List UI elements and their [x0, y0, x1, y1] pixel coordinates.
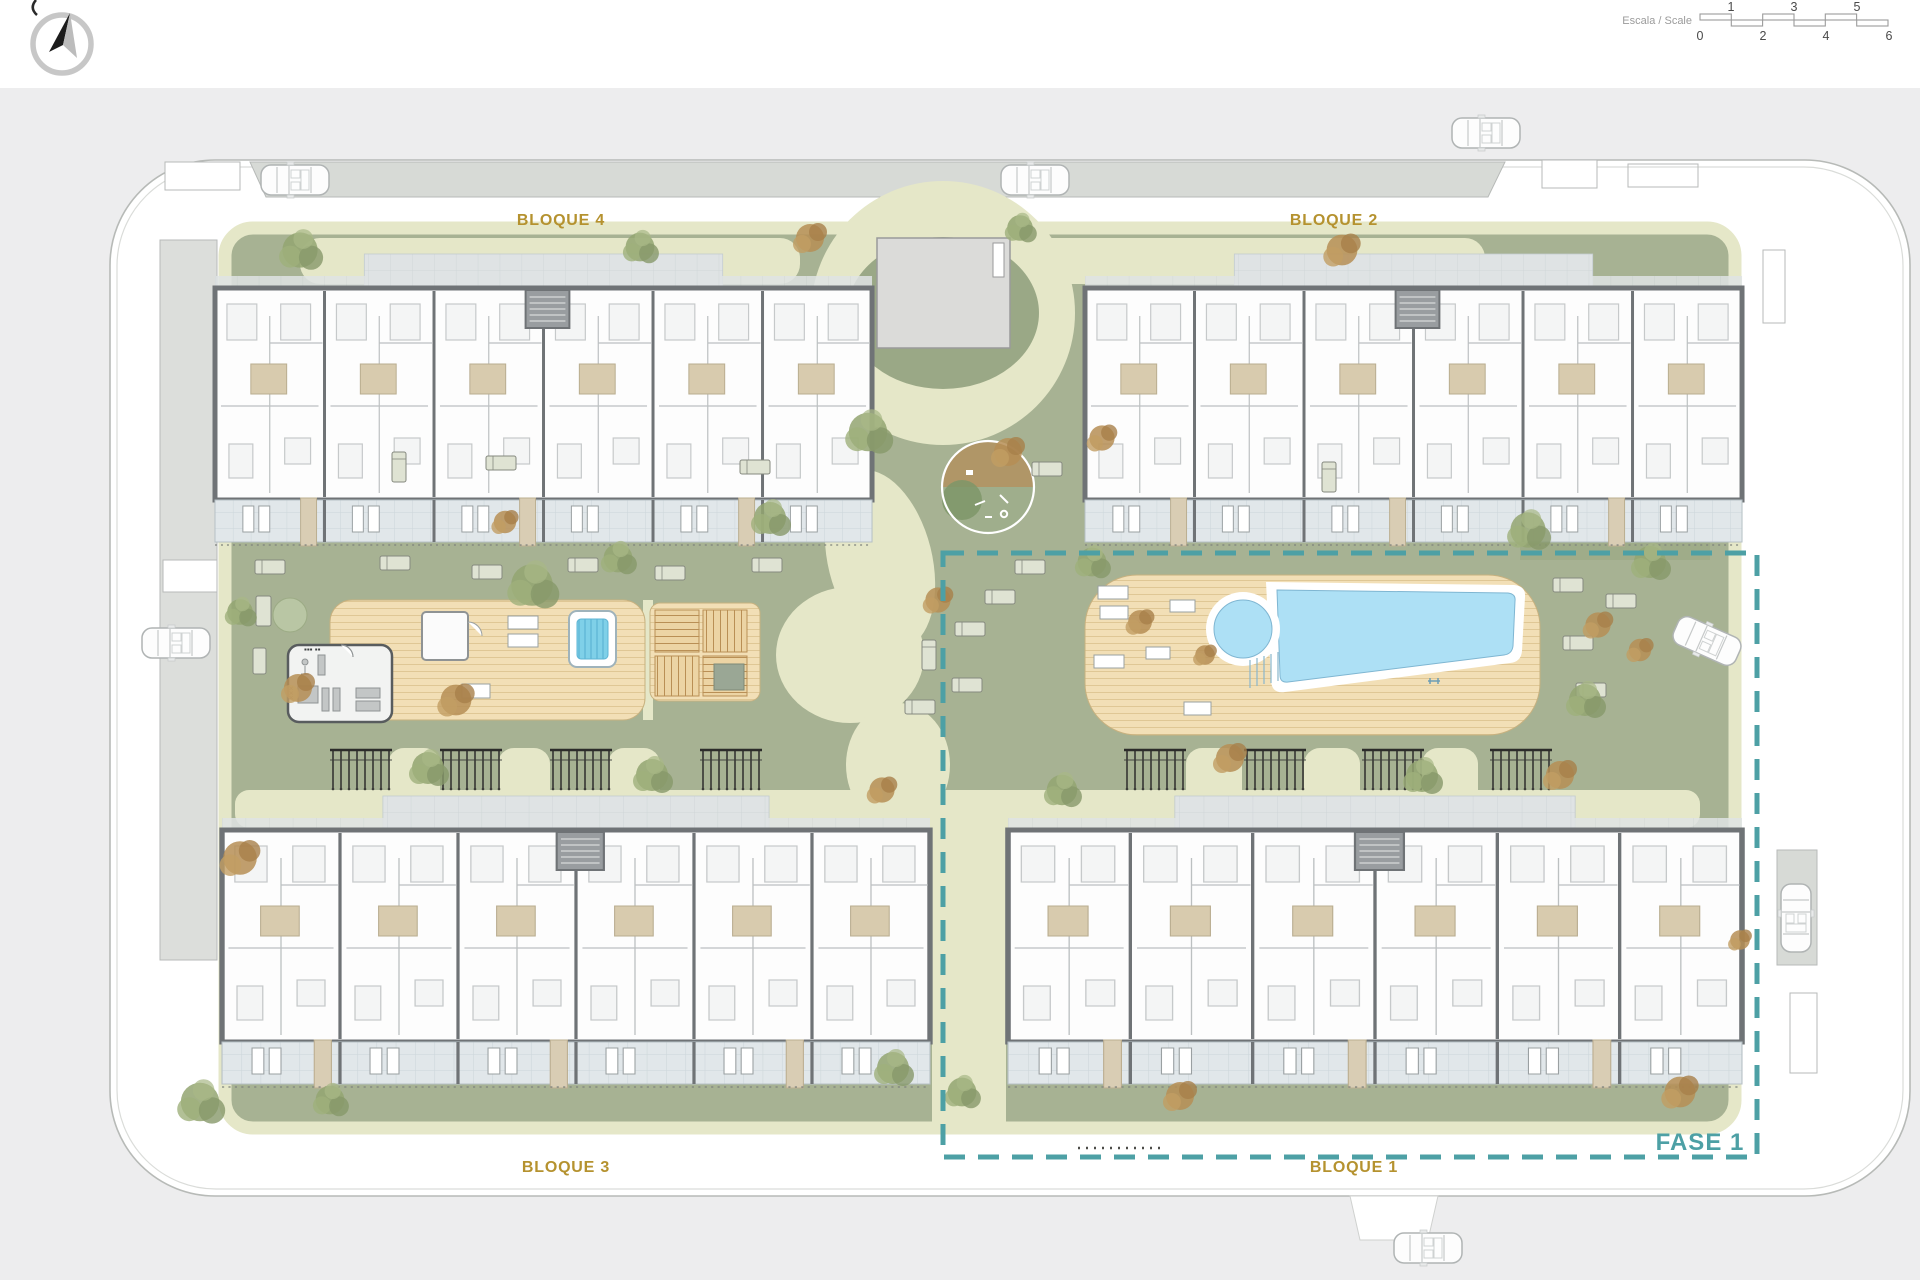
building-bloque-3 [222, 796, 930, 1088]
car-top-right [1452, 115, 1520, 151]
building-bloque-1 [1008, 796, 1742, 1088]
sauna-deck [650, 603, 760, 701]
central-plaza [847, 237, 1039, 389]
plaza-pavilion [877, 238, 1010, 348]
car-top-left [261, 162, 329, 198]
parking-notch-top-left [165, 162, 240, 190]
sauna-bench [714, 664, 744, 690]
masterplan-drawing: ××× ▪▪▪ ▪▪ [0, 0, 1920, 1280]
site-plan-page: ××× ▪▪▪ ▪▪ [0, 0, 1920, 1280]
parking-notch-top-right [1542, 160, 1597, 188]
scale-tick-4: 4 [1823, 29, 1830, 43]
car-bottom [1394, 1230, 1462, 1266]
building-bloque-2 [1085, 254, 1742, 546]
parking-strip-left [160, 240, 217, 960]
scale-tick-1: 1 [1728, 0, 1735, 14]
label-bloque-4: BLOQUE 4 [517, 212, 605, 229]
parking-notch-left [163, 560, 217, 592]
deck-pavilion [422, 612, 468, 660]
scale-tick-6: 6 [1886, 29, 1893, 43]
scale-tick-3: 3 [1791, 0, 1798, 14]
label-bloque-2: BLOQUE 2 [1290, 212, 1378, 229]
scale-tick-2: 2 [1760, 29, 1767, 43]
car-left [142, 625, 210, 661]
parking-notch-right-bottom [1790, 993, 1817, 1073]
round-pool [1214, 600, 1272, 658]
car-right-vertical [1778, 884, 1814, 952]
lawn-mound [273, 598, 307, 632]
jacuzzi [569, 611, 616, 667]
car-top-center [1001, 162, 1069, 198]
pool-deck [1085, 575, 1540, 735]
svg-text:▪▪▪ ▪▪: ▪▪▪ ▪▪ [304, 645, 321, 654]
scale-tick-0: 0 [1697, 29, 1704, 43]
parking-notch-right-top [1763, 250, 1785, 323]
parking-strip-top [250, 162, 1505, 197]
label-bloque-3: BLOQUE 3 [522, 1159, 610, 1176]
scale-bar-caption: Escala / Scale [1622, 15, 1692, 27]
label-bloque-1: BLOQUE 1 [1310, 1159, 1398, 1176]
scale-tick-5: 5 [1854, 0, 1861, 14]
label-fase-1: FASE 1 [1656, 1129, 1745, 1156]
